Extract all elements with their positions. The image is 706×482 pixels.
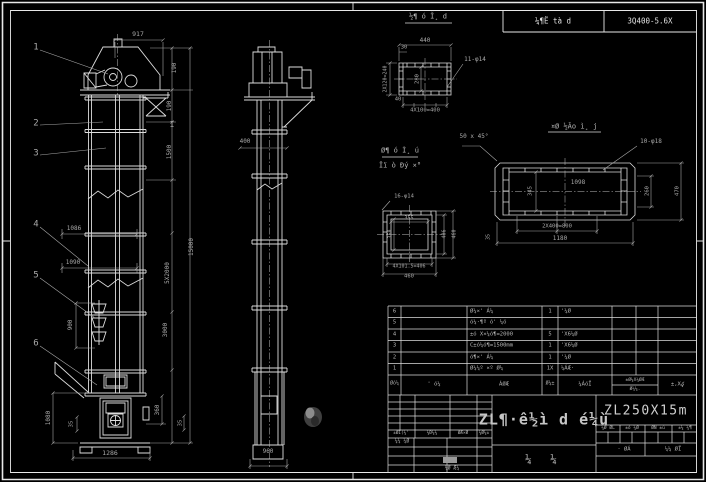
dim-35-plate: 35 — [487, 234, 492, 240]
title-band-cell: ØÑ ±ú — [651, 426, 665, 431]
balloon-6: 6 — [33, 340, 38, 349]
bom-row-no: 4 — [393, 332, 396, 338]
elevation-lines — [55, 39, 315, 459]
bom-row-name: ó¶×' Á¼ — [470, 355, 493, 361]
dim-30: 30 — [401, 45, 408, 51]
bom-row-name: ±ó X×¼ó¶=2000 — [470, 332, 513, 338]
sheet-header-right-cell: 3Q400-5.6X — [627, 17, 672, 25]
sheet-header-left-cell: ¼¶Ë tà d — [535, 17, 571, 25]
table-lines — [388, 306, 697, 473]
bom-row-name: ó¼·¶º ó' ¼ó — [470, 321, 506, 327]
title-left-label: ¼¼ ¼Ø — [395, 441, 409, 446]
dimension-lines — [40, 38, 684, 469]
dim-345: 345 — [528, 186, 534, 196]
title-block-drawing-title: ZL¶·ê½ì d é¼ù — [479, 413, 609, 428]
title-left-row-cell: ¼Ø¼± — [479, 432, 489, 436]
bom-row-no: 5 — [393, 321, 396, 327]
bom-row-mat: 'X6¼Ø — [561, 332, 578, 338]
dim-917: 917 — [132, 31, 144, 38]
bom-row-qty: 1 — [548, 309, 551, 315]
dim-16-d14: 16-φ14 — [394, 194, 414, 200]
title-band-cell: ±ó ¼Ø — [625, 426, 639, 431]
bom-row-no: 3 — [393, 344, 396, 350]
dim-355: 355 — [404, 217, 413, 222]
dim-2x400: 2X400=800 — [542, 224, 572, 230]
balloon-5: 5 — [33, 272, 38, 281]
dim-35-boot-left: 35 — [69, 421, 75, 428]
cad-drawing-sheet: ¼¶Ë tà d 3Q400-5.6X ZL¶·ê½ì d é¼ù ¼ ¼ ZL… — [0, 0, 706, 482]
dim-350: 350 — [389, 229, 394, 238]
balloon-1: 1 — [33, 44, 38, 53]
dim-406-v: 406 — [443, 229, 448, 238]
dim-470: 470 — [675, 186, 681, 196]
dim-3000: 3000 — [163, 323, 169, 337]
bom-header-no: Øó¼ — [390, 383, 399, 388]
dim-1080: 1080 — [46, 411, 52, 425]
dim-1098: 1098 — [571, 180, 585, 186]
title-band-cell: ±¼ ¼¶ — [678, 426, 692, 431]
title-left-row-cell: ±ØÏ(¼' — [393, 432, 409, 436]
detail-a-title: ½¶ ó Ĭ¸ d — [409, 14, 447, 21]
bom-row-no: 1 — [393, 367, 396, 373]
bom-row-no: 2 — [393, 355, 396, 361]
dim-1180: 1180 — [553, 236, 567, 242]
bom-header-name: ÁØÆ — [499, 382, 509, 388]
bom-row-qty: 1 — [548, 355, 551, 361]
title-block-type-label: ¼ ¼ — [525, 454, 563, 465]
title-block-drawing-no: ZL250X15m — [604, 405, 688, 418]
bom-row-qty: 5 — [548, 332, 551, 338]
dim-900: 900 — [68, 320, 74, 331]
dim-10-d18: 10-φ18 — [640, 139, 662, 145]
dim-460-v: 460 — [453, 229, 458, 238]
dim-190-a: 190 — [172, 63, 178, 74]
dim-960: 960 — [263, 449, 274, 455]
dim-460-h: 460 — [404, 274, 414, 280]
dim-2x120: 2X120=240 — [384, 65, 389, 92]
bom-row-mat: '¼Ø — [561, 355, 571, 361]
dim-4x101: 4X101.5=406 — [392, 265, 425, 270]
balloon-4: 4 — [33, 221, 38, 230]
center-lines — [118, 34, 642, 467]
dim-400-side: 400 — [240, 139, 251, 145]
dim-5x2000: 5X2000 — [165, 262, 171, 284]
dim-35-boot-right: 35 — [178, 420, 184, 427]
bom-row-mat: 'X6¼Ø — [561, 344, 578, 350]
dim-11-d14: 11-φ14 — [464, 57, 486, 63]
title-band-cell: ¼Ø ØL — [601, 426, 615, 431]
bom-header-weight-top: ±Ø¼X¼ØÆ — [626, 378, 645, 383]
title-left-row-cell: ØÆ×Ø — [458, 432, 468, 436]
bom-header-note: ±,Xؼ — [671, 382, 684, 388]
title-band2-right: ¼¼ ØÏ — [665, 447, 682, 453]
detail-c-title-2: Ïï ò Ðý ×° — [379, 163, 421, 170]
balloon-3: 3 — [33, 150, 38, 159]
dim-15000: 15000 — [189, 238, 195, 256]
dim-1090: 1090 — [66, 260, 80, 266]
title-left-bottom: ¼Ø Æ¼ — [445, 467, 459, 472]
bom-header-code: ' ó¼ — [427, 382, 440, 388]
dim-190-b: 190 — [167, 101, 173, 112]
title-band2-left: · ØÁ — [617, 447, 630, 453]
bom-row-qty: 1 — [548, 344, 551, 350]
bom-row-name: Ø¼¼º ×º Ø¼ — [470, 367, 503, 373]
title-left-row-cell: ¼Ð¼¼ — [427, 432, 437, 436]
dim-440: 440 — [420, 38, 431, 44]
bom-row-no: 6 — [393, 309, 396, 315]
bom-row-name: C±ó¼ó¶=1500mm — [470, 344, 513, 350]
bom-row-mat: '¼Ø — [561, 309, 571, 315]
bom-row-mat: ¼ÁÆ· — [561, 367, 574, 373]
bom-header-mat: ¼ÁóÏ — [578, 382, 591, 388]
signature-mark — [443, 457, 457, 463]
note-chamfer: 50 x 45° — [460, 134, 489, 140]
bom-header-qty: Ø¼± — [546, 383, 555, 388]
dim-1286: 1286 — [102, 450, 118, 457]
detail-b-title: ¤Ø ½Ão ì¸ j — [551, 124, 597, 131]
dim-1086: 1086 — [67, 226, 81, 232]
dim-260: 260 — [645, 186, 651, 196]
symbol-ibeam: I — [170, 121, 175, 129]
detail-c-title-1: Ø¶ ó Ì¸ ú — [381, 148, 419, 155]
smudge-artifact — [304, 407, 322, 427]
dim-4x100: 4X100=400 — [410, 108, 440, 114]
bom-row-qty: 1X — [547, 367, 554, 373]
dim-280: 280 — [415, 74, 421, 84]
bom-header-weight-bottom: Ø¼¼. — [630, 388, 641, 393]
dim-40: 40 — [395, 97, 402, 103]
bom-row-name: Ø¼×' Á¼ — [470, 309, 493, 315]
balloon-2: 2 — [33, 120, 38, 129]
dim-1500: 1500 — [167, 145, 173, 159]
dim-360: 360 — [155, 405, 161, 416]
